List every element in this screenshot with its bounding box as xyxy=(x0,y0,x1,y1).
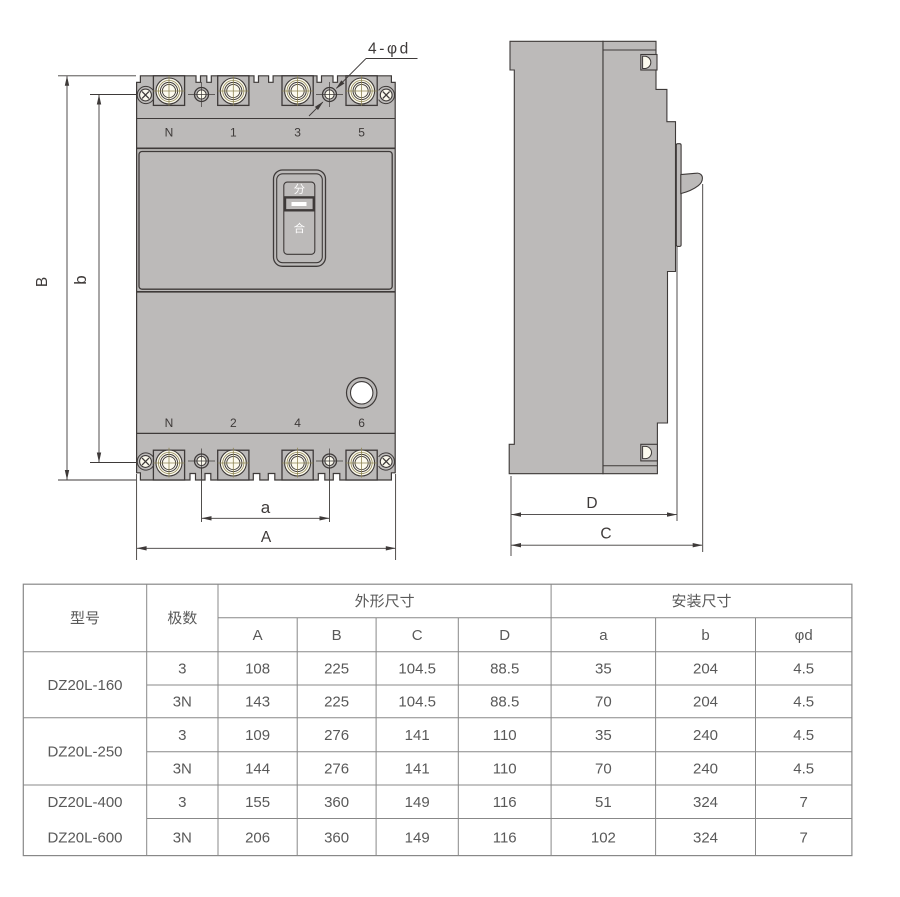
svg-text:3N: 3N xyxy=(173,829,192,846)
svg-text:D: D xyxy=(586,495,597,512)
svg-text:143: 143 xyxy=(245,694,270,711)
svg-text:b: b xyxy=(701,627,709,644)
svg-text:b: b xyxy=(71,275,90,284)
svg-text:2: 2 xyxy=(230,416,237,430)
svg-text:204: 204 xyxy=(693,694,718,711)
svg-text:109: 109 xyxy=(245,727,270,744)
svg-text:4: 4 xyxy=(294,416,301,430)
svg-text:4.5: 4.5 xyxy=(793,694,814,711)
svg-text:5: 5 xyxy=(358,126,365,140)
svg-text:104.5: 104.5 xyxy=(398,661,436,678)
svg-text:35: 35 xyxy=(595,727,612,744)
svg-text:C: C xyxy=(412,627,423,644)
svg-text:149: 149 xyxy=(405,794,430,811)
svg-text:116: 116 xyxy=(493,829,517,846)
svg-text:110: 110 xyxy=(493,761,517,778)
svg-text:324: 324 xyxy=(693,794,718,811)
svg-text:240: 240 xyxy=(693,761,718,778)
svg-text:3N: 3N xyxy=(173,694,192,711)
svg-text:7: 7 xyxy=(800,794,808,811)
svg-text:88.5: 88.5 xyxy=(490,661,519,678)
svg-text:110: 110 xyxy=(493,727,517,744)
svg-text:104.5: 104.5 xyxy=(398,694,436,711)
svg-text:102: 102 xyxy=(591,829,616,846)
svg-text:C: C xyxy=(600,526,611,543)
svg-text:N: N xyxy=(165,126,174,140)
svg-text:B: B xyxy=(34,277,51,287)
svg-text:a: a xyxy=(599,627,608,644)
svg-text:B: B xyxy=(332,627,342,644)
svg-text:DZ20L-400: DZ20L-400 xyxy=(47,794,122,811)
svg-text:108: 108 xyxy=(245,661,270,678)
svg-text:324: 324 xyxy=(693,829,718,846)
svg-text:51: 51 xyxy=(595,794,612,811)
svg-text:70: 70 xyxy=(595,761,612,778)
svg-text:225: 225 xyxy=(324,694,349,711)
svg-text:276: 276 xyxy=(324,761,349,778)
svg-text:6: 6 xyxy=(358,416,365,430)
svg-text:4.5: 4.5 xyxy=(793,661,814,678)
svg-text:DZ20L-250: DZ20L-250 xyxy=(47,744,122,761)
svg-text:7: 7 xyxy=(800,829,808,846)
svg-text:N: N xyxy=(165,416,174,430)
svg-text:35: 35 xyxy=(595,661,612,678)
svg-text:3: 3 xyxy=(294,126,301,140)
svg-text:φd: φd xyxy=(795,627,813,644)
svg-text:3: 3 xyxy=(178,794,186,811)
svg-text:DZ20L-600: DZ20L-600 xyxy=(47,829,122,846)
svg-text:149: 149 xyxy=(405,829,430,846)
svg-text:a: a xyxy=(261,498,271,517)
svg-text:70: 70 xyxy=(595,694,612,711)
svg-text:116: 116 xyxy=(493,794,517,811)
svg-text:1: 1 xyxy=(230,126,237,140)
svg-text:3N: 3N xyxy=(173,761,192,778)
svg-text:88.5: 88.5 xyxy=(490,694,519,711)
svg-text:4.5: 4.5 xyxy=(793,727,814,744)
svg-text:276: 276 xyxy=(324,727,349,744)
svg-text:144: 144 xyxy=(245,761,270,778)
svg-text:360: 360 xyxy=(324,794,349,811)
svg-text:A: A xyxy=(261,529,272,546)
svg-text:DZ20L-160: DZ20L-160 xyxy=(47,677,122,694)
svg-text:3: 3 xyxy=(178,727,186,744)
svg-text:204: 204 xyxy=(693,661,718,678)
svg-text:206: 206 xyxy=(245,829,270,846)
svg-text:3: 3 xyxy=(178,661,186,678)
svg-text:D: D xyxy=(499,627,510,644)
svg-text:141: 141 xyxy=(405,727,430,744)
svg-text:4-φd: 4-φd xyxy=(368,41,411,58)
svg-text:4.5: 4.5 xyxy=(793,761,814,778)
svg-text:225: 225 xyxy=(324,661,349,678)
svg-text:A: A xyxy=(253,627,263,644)
svg-text:240: 240 xyxy=(693,727,718,744)
svg-text:155: 155 xyxy=(245,794,270,811)
svg-text:360: 360 xyxy=(324,829,349,846)
svg-text:141: 141 xyxy=(405,761,430,778)
